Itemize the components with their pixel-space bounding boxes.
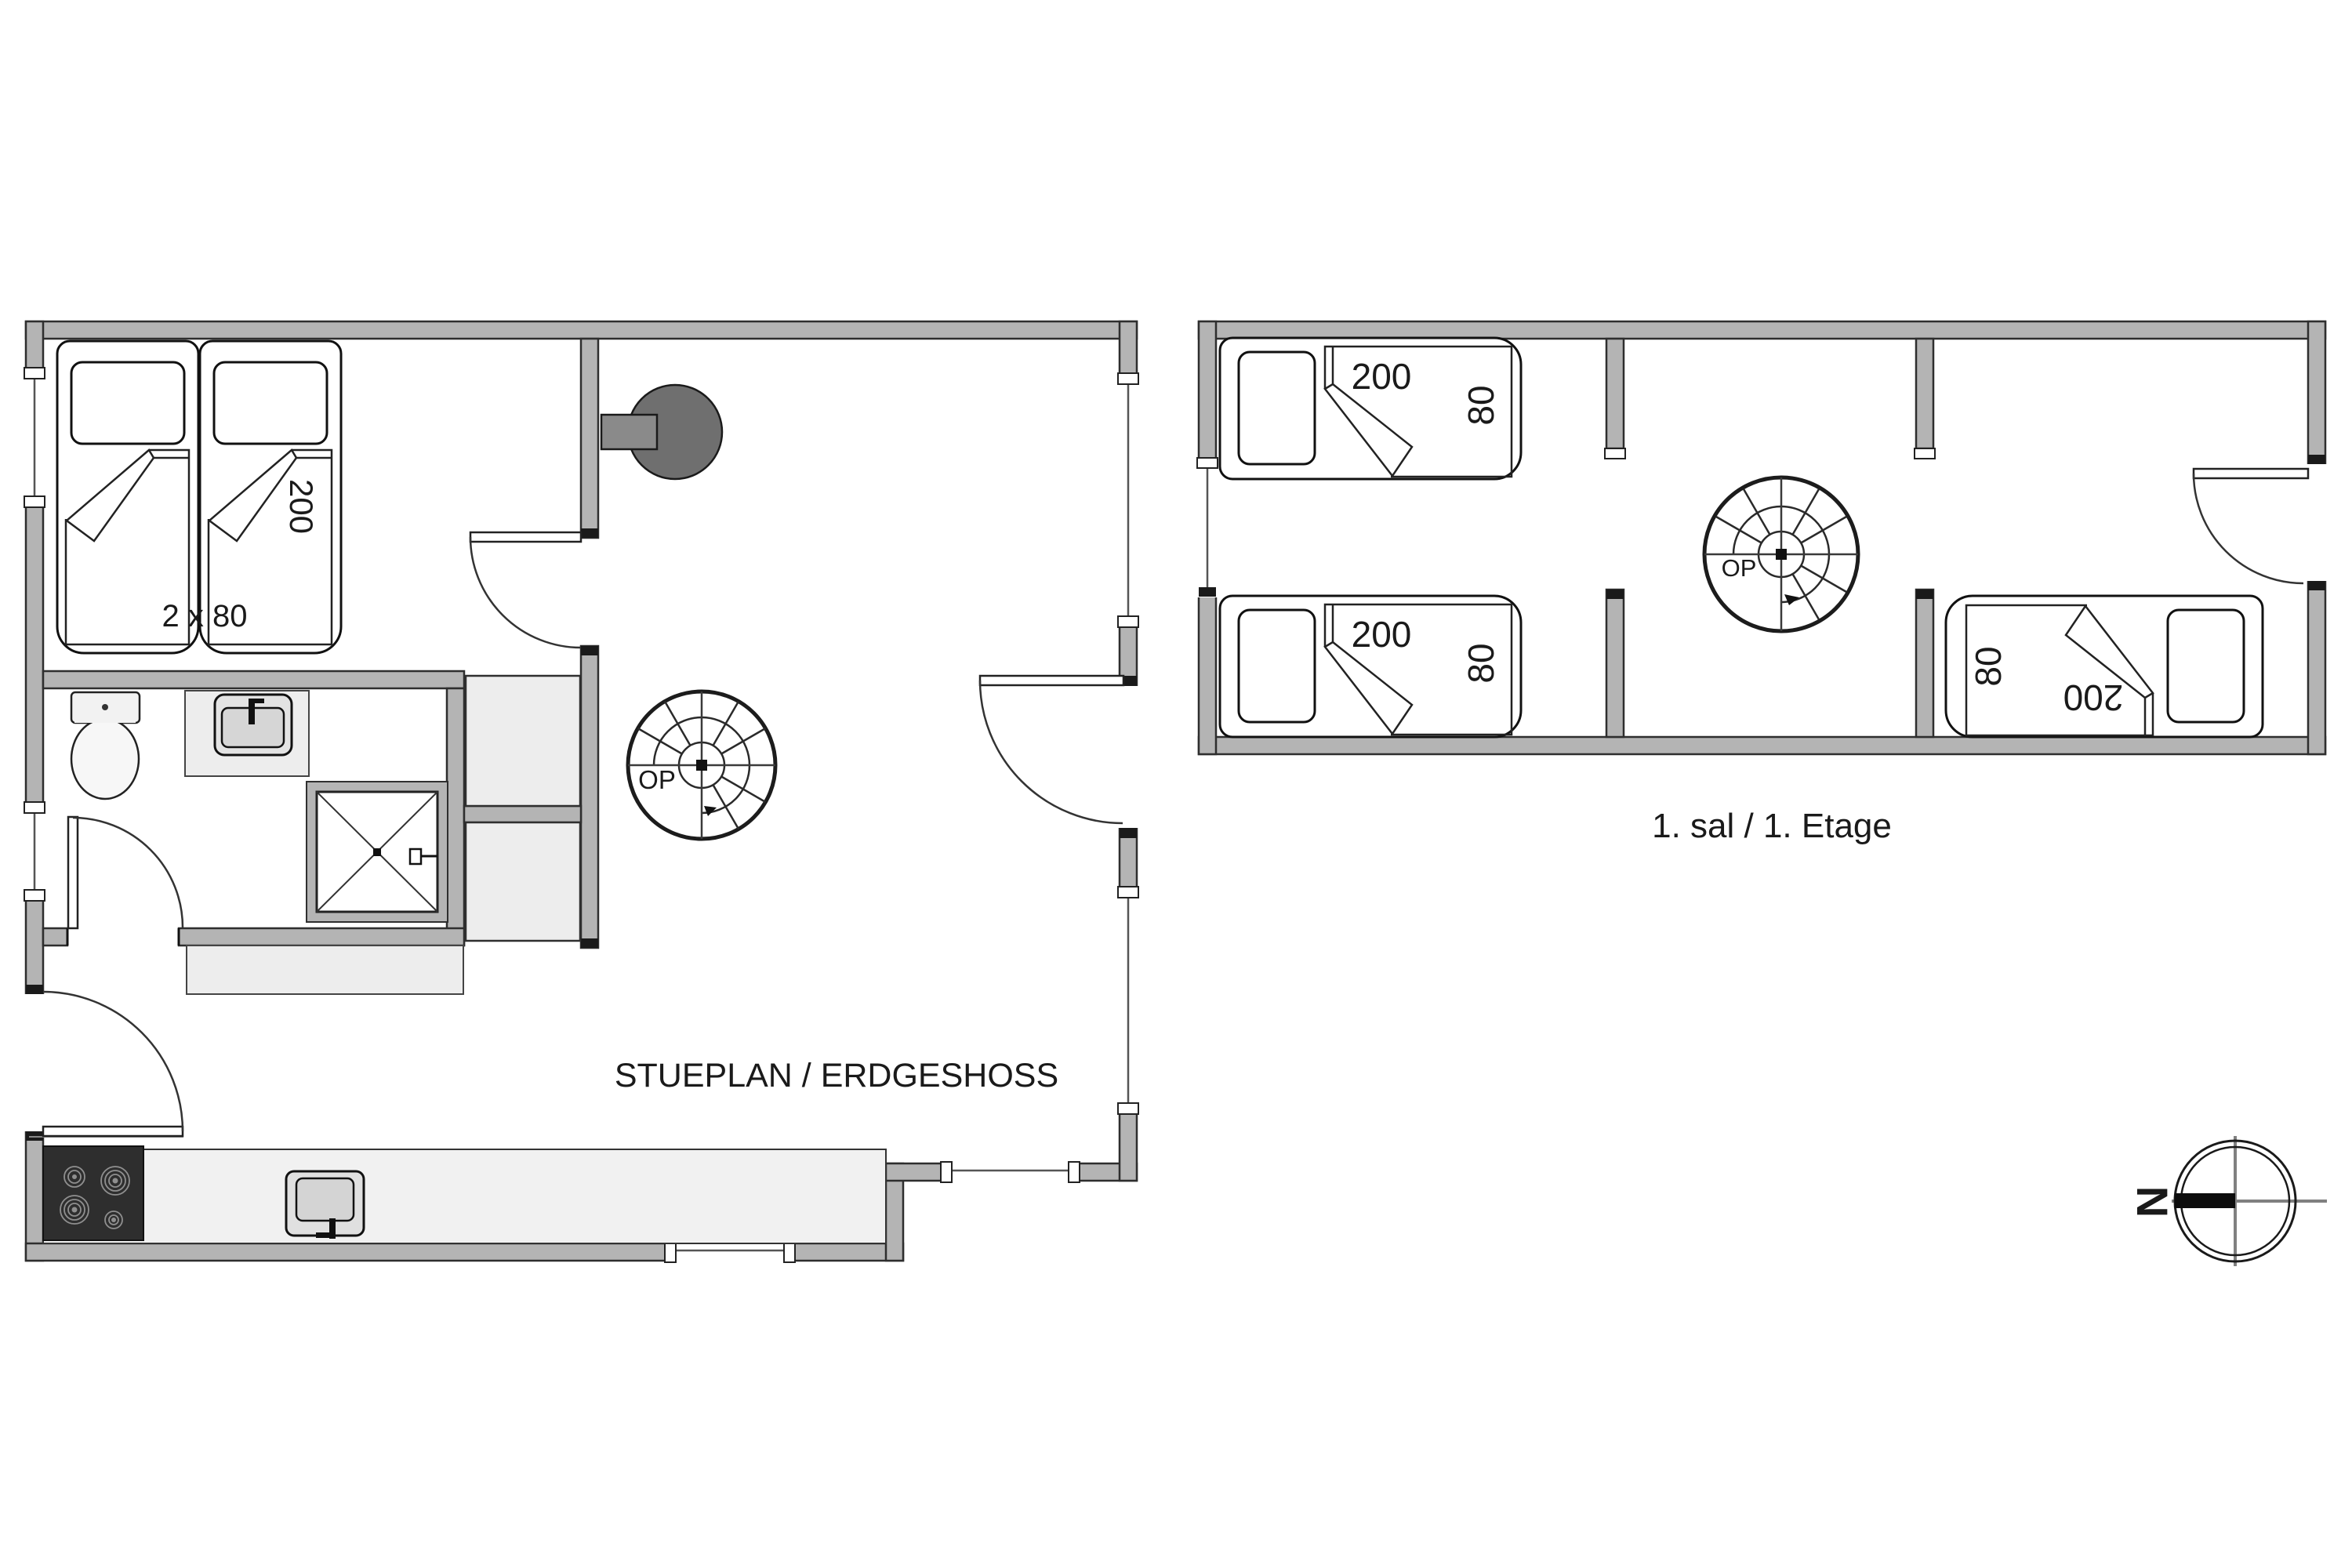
- svg-text:OP: OP: [1722, 554, 1757, 582]
- svg-text:200: 200: [1352, 356, 1412, 397]
- svg-text:STUEPLAN / ERDGESHOSS: STUEPLAN / ERDGESHOSS: [615, 1057, 1058, 1094]
- svg-text:1. sal / 1. Etage: 1. sal / 1. Etage: [1652, 807, 1892, 845]
- svg-text:80: 80: [1461, 385, 1501, 425]
- svg-text:OP: OP: [638, 765, 676, 794]
- svg-text:80: 80: [1461, 643, 1501, 683]
- svg-text:2 x 80: 2 x 80: [162, 599, 248, 633]
- svg-text:N: N: [2128, 1186, 2177, 1218]
- svg-text:200: 200: [2063, 677, 2124, 718]
- svg-text:80: 80: [1968, 646, 2009, 686]
- svg-text:200: 200: [283, 479, 320, 534]
- svg-text:200: 200: [1352, 614, 1412, 655]
